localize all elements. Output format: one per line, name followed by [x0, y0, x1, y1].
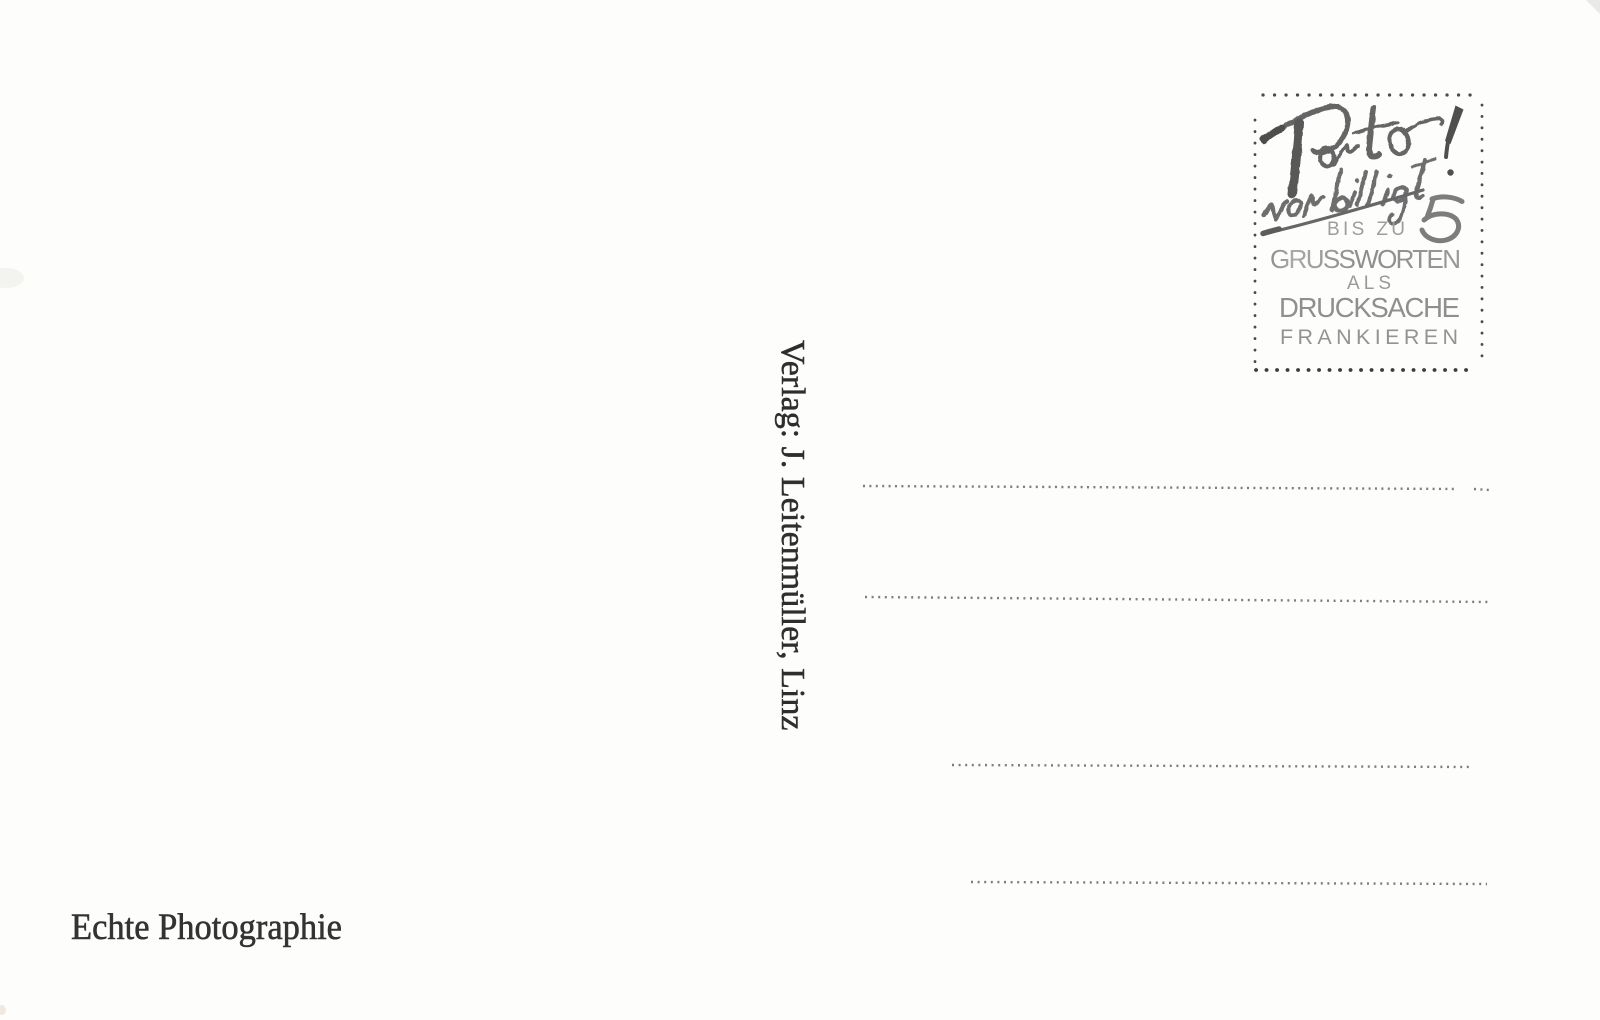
svg-text:Echte Photographie: Echte Photographie: [71, 907, 342, 948]
svg-text:FRANKIEREN: FRANKIEREN: [1280, 325, 1458, 349]
svg-text:Verlag: J. Leitenmüller, Linz: Verlag: J. Leitenmüller, Linz: [774, 340, 811, 730]
svg-text:DRUCKSACHE: DRUCKSACHE: [1279, 292, 1460, 323]
svg-text:GRUSSWORTEN: GRUSSWORTEN: [1270, 244, 1461, 274]
svg-text:ALS: ALS: [1347, 273, 1391, 294]
